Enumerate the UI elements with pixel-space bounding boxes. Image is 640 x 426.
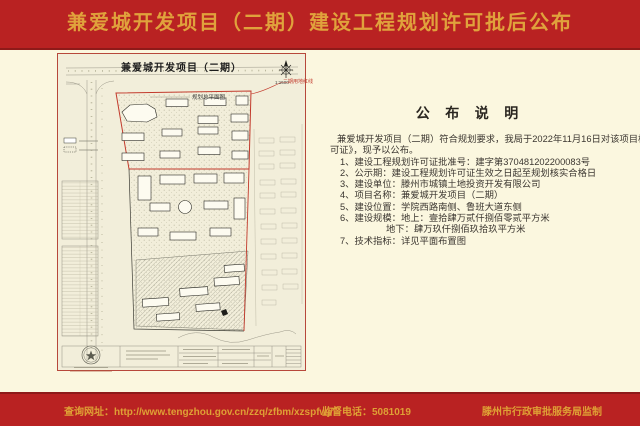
- footer-band: 查询网址：http://www.tengzhou.gov.cn/zzq/zfbm…: [0, 392, 640, 426]
- official-seal: [70, 346, 112, 371]
- plan-title: 兼爱城开发项目（二期）: [58, 59, 305, 74]
- title-band: 兼爱城开发项目（二期）建设工程规划许可批后公布: [0, 0, 640, 50]
- footer-website: 查询网址：http://www.tengzhou.gov.cn/zzq/zfbm…: [64, 403, 333, 418]
- legend: [64, 138, 98, 152]
- site-plan-drawing: [58, 54, 305, 370]
- notice-item-scale-above: 6、建设规模：地上：壹拾肆万贰仟捌佰零贰平方米: [330, 213, 610, 224]
- notice-item-indicators: 7、技术指标：详见平面布置图: [330, 236, 610, 247]
- notice-paragraph-line1: 兼爱城开发项目（二期）符合规划要求，我局于2022年11月16日对该项目核发了《…: [330, 134, 610, 145]
- notice-item-construction-unit: 3、建设单位：滕州市城镇土地投资开发有限公司: [330, 179, 610, 190]
- plan-boundary-label: 二期用地红线: [283, 78, 313, 85]
- notice-item-location: 5、建设位置：学院西路南侧、鲁班大道东侧: [330, 202, 610, 213]
- page-title: 兼爱城开发项目（二期）建设工程规划许可批后公布: [0, 0, 640, 46]
- adjacent-blocks: [254, 124, 302, 326]
- notice-item-publicity-period: 2、公示期：建设工程规划许可证生效之日起至规划核实合格日: [330, 168, 610, 179]
- notice-item-permit-number: 1、建设工程规划许可证批准号：建字第370481202200083号: [330, 157, 610, 168]
- indicator-tables: [62, 181, 98, 336]
- notice-paragraph-line2: 可证》，现予以公布。: [330, 145, 610, 156]
- footer-phone: 监督电话：5081019: [322, 403, 411, 418]
- notice-heading: 公 布 说 明: [330, 103, 610, 123]
- notice-section: 公 布 说 明 兼爱城开发项目（二期）符合规划要求，我局于2022年11月16日…: [330, 103, 610, 247]
- plan-subtitle: 规划总平面图: [192, 93, 225, 101]
- footer-agency: 滕州市行政审批服务局监制: [482, 403, 602, 418]
- notice-item-project-name: 4、项目名称：兼爱城开发项目（二期）: [330, 190, 610, 201]
- landscape-contour: [178, 330, 296, 342]
- site-plan-panel: 兼爱城开发项目（二期） 规划总平面图 1:1500 二期用地红线: [57, 53, 306, 371]
- announcement-page: 兼爱城开发项目（二期）建设工程规划许可批后公布: [0, 0, 640, 426]
- notice-item-scale-below: 地下：肆万玖仟捌佰玖拾玖平方米: [330, 224, 610, 235]
